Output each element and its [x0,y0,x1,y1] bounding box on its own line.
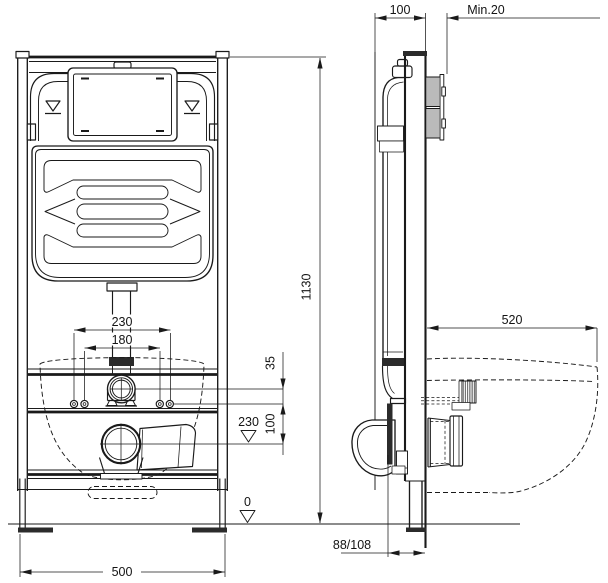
level-marker-0: 0 [240,495,255,523]
dim-wall-finish-min: Min.20 [467,3,505,17]
flush-bend-housing [106,375,138,406]
level-marker-230: 230 [238,415,259,442]
front-view [16,52,229,533]
rail-cap-left [16,52,29,59]
side-view [352,51,598,548]
dim-floor-level: 0 [244,495,251,509]
level-triangle-icon [184,101,200,114]
frame-top-cap [403,51,427,56]
outlet-connector-side [428,416,463,467]
cistern-profile [378,60,413,404]
dim-outlet-level: 230 [238,415,259,429]
outlet-elbow-front [137,425,196,471]
fixing-rod-side [421,381,476,410]
cistern [32,146,213,281]
installation-frame-drawing: 100 Min.20 1130 520 230 180 35 100 [0,0,608,583]
outlet-bracket-base [101,474,143,480]
dim-flush-offset: 35 [264,356,278,370]
panel-hinge-right [210,124,218,140]
dim-frame-height: 1130 [300,274,314,301]
flush-valve-seat [382,358,404,366]
dim-bowl-projection: 520 [502,313,523,327]
level-triangle-icon [241,431,256,443]
foot-plate-right [192,528,227,533]
actuator-plate-box [426,75,445,141]
level-triangle-icon [45,101,61,114]
dim-frame-width: 500 [112,565,133,579]
rail-cap-right [216,52,229,59]
fill-valve-cap [393,66,413,78]
dim-frame-depth: 100 [390,3,411,17]
dim-fixing-to-outlet: 100 [264,414,278,435]
access-panel [68,68,177,141]
drain-outlet [100,424,196,480]
level-triangle-icon [240,511,255,523]
panel-hinge-left [27,124,35,140]
technical-drawing-page: 100 Min.20 1130 520 230 180 35 100 [0,0,608,583]
dim-fixing-centers-inner: 180 [112,333,133,347]
dim-outlet-wall-offset: 88/108 [333,538,371,552]
foot-plate-left [18,528,53,533]
foot-plate-side [406,528,426,533]
dim-fixing-centers-outer: 230 [112,315,133,329]
